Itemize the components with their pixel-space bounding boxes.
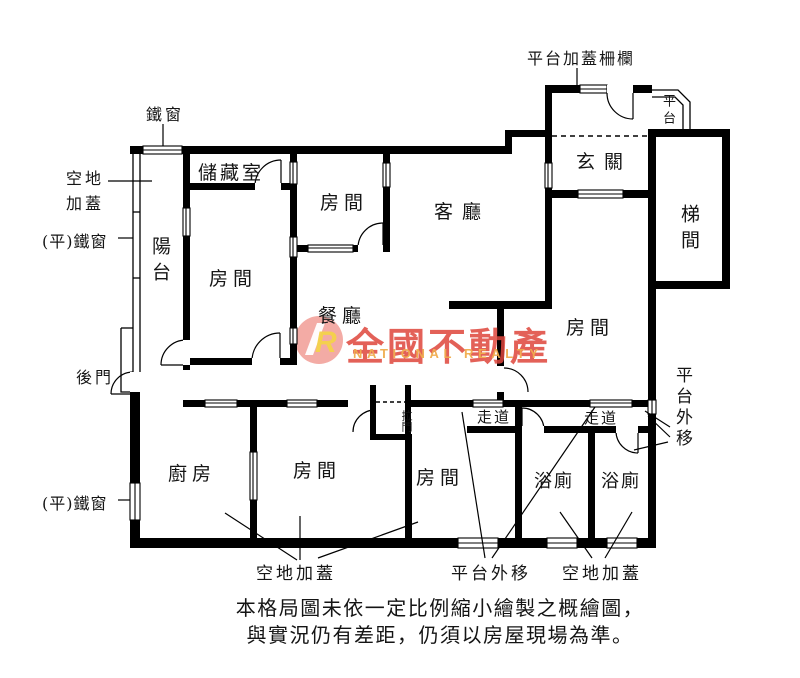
room-label-sliding-door: 拉門 (398, 410, 414, 432)
room-label-bedroom-right: 房間 (566, 313, 614, 340)
room-label-bath-2: 浴廁 (601, 467, 641, 493)
disclaimer-line-1: 本格局圖未依一定比例縮小繪製之概繪圖， (150, 596, 730, 623)
watermark-brand-zh: 全國不動產 (346, 316, 551, 371)
room-label-corridor-1: 走道 (477, 406, 511, 427)
disclaimer: 本格局圖未依一定比例縮小繪製之概繪圖， 與實況仍有差距，仍須以房屋現場為準。 (150, 596, 730, 650)
room-label-bedroom-bottom-left: 房間 (293, 456, 341, 483)
disclaimer-line-2: 與實況仍有差距，仍須以房屋現場為準。 (150, 623, 730, 650)
svg-text:R: R (315, 326, 337, 359)
callout-platform-fence: 平台加蓋柵欄 (527, 45, 635, 69)
room-label-bedroom-bottom-mid: 房間 (416, 463, 464, 490)
callout-open-land-bottom-right: 空地加蓋 (562, 559, 642, 584)
callout-platform-out-bottom: 平台外移 (451, 559, 531, 584)
room-label-bedroom-top-mid: 房間 (320, 188, 368, 215)
room-label-stairwell: 梯間 (676, 204, 703, 256)
room-label-bedroom-top-left: 房間 (209, 264, 257, 291)
room-label-kitchen: 廚房 (168, 459, 216, 486)
callout-open-land-line1: 空地 (66, 165, 104, 189)
callout-flat-iron-window-1: (平)鐵窗 (42, 228, 108, 252)
room-label-platform-top: 平台 (658, 94, 677, 128)
callout-iron-window-top: 鐵窗 (146, 101, 184, 125)
room-label-living: 客廳 (434, 197, 490, 224)
callout-platform-out-right: 平台外移 (670, 366, 695, 450)
watermark-brand-en: NATIONAL REALTY (353, 346, 543, 361)
room-label-bath-1: 浴廁 (534, 467, 574, 493)
room-label-entry: 玄關 (576, 147, 632, 174)
room-label-corridor-2: 走道 (584, 407, 618, 428)
floor-plan-page: R (0, 0, 800, 678)
room-label-storage: 儲藏室 (198, 158, 264, 185)
callout-open-land-bottom-left: 空地加蓋 (256, 559, 336, 584)
callout-open-land-line2: 加蓋 (66, 190, 104, 214)
room-label-balcony: 陽台 (147, 236, 174, 288)
callout-back-door: 後門 (76, 364, 114, 388)
callout-flat-iron-window-2: (平)鐵窗 (42, 490, 108, 514)
